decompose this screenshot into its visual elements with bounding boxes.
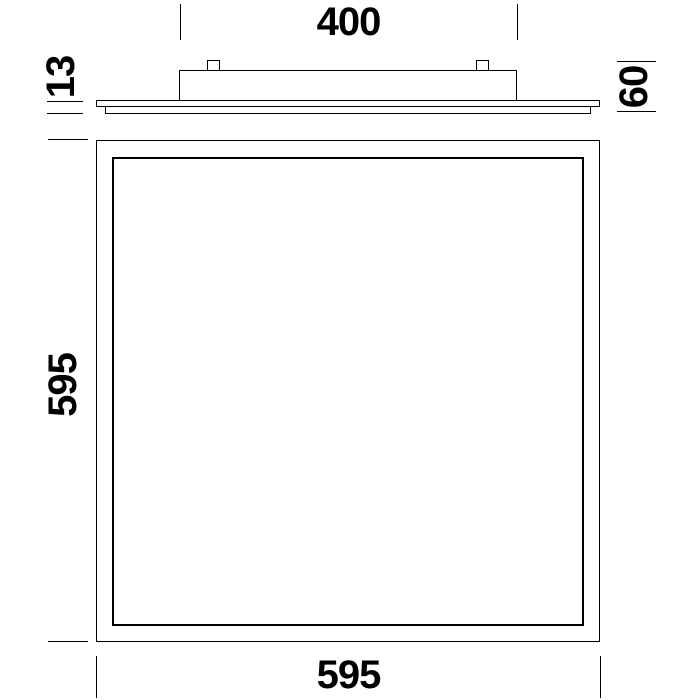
mounting-tab-right	[476, 60, 489, 71]
dimension-tick	[48, 641, 88, 642]
dimension-tick	[517, 4, 518, 40]
dimension-label-driver-box-width: 400	[180, 1, 517, 43]
dimension-tick	[48, 139, 88, 140]
dimension-drawing: 400 13 60 595 595	[0, 0, 700, 700]
driver-box	[179, 70, 517, 101]
dimension-label-panel-height: 595	[42, 335, 84, 435]
dimension-label-panel-thickness: 13	[40, 47, 82, 107]
mounting-tab-left	[207, 60, 220, 71]
panel-outline-inner	[112, 157, 584, 626]
dimension-tick	[47, 113, 83, 114]
dimension-label-total-height: 60	[613, 57, 655, 117]
panel-diffuser-lower-edge	[105, 106, 591, 114]
dimension-label-panel-width: 595	[96, 654, 601, 696]
